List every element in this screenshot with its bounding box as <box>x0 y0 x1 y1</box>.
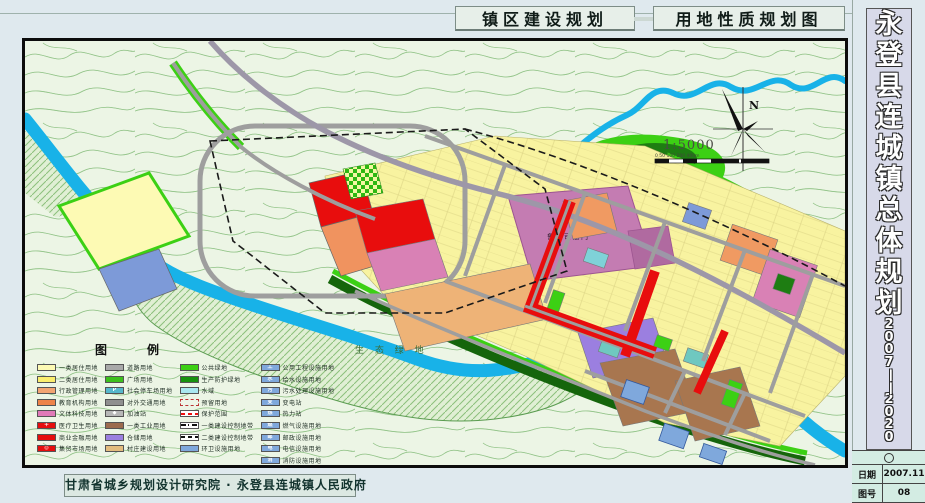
title-right: 用地性质规划图 <box>653 6 845 31</box>
date-label: 日期 <box>852 465 883 483</box>
sheet-title-year-char: 0 <box>884 432 893 445</box>
legend-item: P社会停车场用地 <box>105 387 173 394</box>
legend-column-1: 一类居住用地二类居住用地行政管理用地教育机构用地文体科技用地＋医疗卫生用地商业金… <box>37 364 98 468</box>
scale-bar-labels: 0 50 100 200 400m <box>655 153 699 159</box>
sheet-title-char: 总 <box>876 195 903 226</box>
title-connector <box>634 17 654 21</box>
legend-item: 燃燃气设施用地 <box>261 422 335 429</box>
legend-item: 教育机构用地 <box>37 399 98 406</box>
legend-item-label: 保护范围 <box>202 409 228 418</box>
legend-swatch <box>37 434 56 441</box>
legend-swatch-symbol: 热 <box>268 411 273 416</box>
legend-swatch <box>37 387 56 394</box>
legend-item: 工公用工程设施用地 <box>261 364 335 371</box>
legend-item-label: 集贸市场用地 <box>59 444 98 453</box>
eco-green-label: 生 态 绿 地 <box>355 344 428 356</box>
legend-swatch: P <box>105 387 124 394</box>
legend-item: 消消防设施用地 <box>261 457 335 464</box>
legend-item-label: 行政管理用地 <box>59 386 98 395</box>
legend-item-label: 公用工程设施用地 <box>283 363 335 372</box>
legend-item-label: 二类居住用地 <box>59 375 98 384</box>
sheet-title-char: 体 <box>876 226 903 257</box>
legend-item-label: 一类居住用地 <box>59 363 98 372</box>
legend-swatch <box>180 410 199 417</box>
sheet-title-year-char: 7 <box>884 357 893 370</box>
legend-item: ＋医疗卫生用地 <box>37 422 98 429</box>
legend-item: 对外交通用地 <box>105 399 173 406</box>
sheet-title-char: 永 <box>876 9 903 40</box>
legend-swatch-symbol: 消 <box>268 458 273 463</box>
legend-item-label: 商业金融用地 <box>59 433 98 442</box>
legend-swatch: ＋ <box>37 422 56 429</box>
footer-bar: 甘肃省城乡规划设计研究院 · 永登县连城镇人民政府 <box>0 468 852 500</box>
legend-item-label: 广场用地 <box>127 375 153 384</box>
sheet-title-char: 城 <box>876 133 903 164</box>
legend-item: 污污水处理设施用地 <box>261 387 335 394</box>
legend-item-label: 一类建设控制地带 <box>202 421 254 430</box>
legend-item: 二类居住用地 <box>37 376 98 383</box>
legend-item-label: 环卫设施用地 <box>202 444 241 453</box>
legend-item-label: 热力站 <box>283 409 303 418</box>
legend-item: 公共绿地 <box>180 364 254 371</box>
north-label: N <box>749 99 759 112</box>
legend-item-label: 燃气设施用地 <box>283 421 322 430</box>
legend-column-3: 公共绿地生产防护绿地水域预留用地保护范围一类建设控制地带二类建设控制地带环卫设施… <box>180 364 254 468</box>
legend-swatch: 工 <box>261 364 280 371</box>
legend-column-2: 道路用地广场用地P社会停车场用地对外交通用地◆加油站一类工业用地仓储用地村庄建设… <box>105 364 173 468</box>
legend-swatch <box>180 364 199 371</box>
stamp-row <box>852 451 925 465</box>
legend-swatch <box>105 364 124 371</box>
figure-number-label: 图号 <box>852 484 883 502</box>
legend-item: 热热力站 <box>261 410 335 417</box>
legend-item: ◆加油站 <box>105 410 173 417</box>
legend-swatch <box>37 364 56 371</box>
legend-swatch <box>105 399 124 406</box>
legend-item: 水域 <box>180 387 254 394</box>
date-value: 2007.11 <box>883 465 925 483</box>
legend-item: 商业金融用地 <box>37 434 98 441</box>
legend-item: ◎集贸市场用地 <box>37 445 98 452</box>
legend-item-label: 预留用地 <box>202 398 228 407</box>
sheet-title-char: 登 <box>876 40 903 71</box>
legend-item: 电电信设施用地 <box>261 445 335 452</box>
legend-swatch <box>105 376 124 383</box>
figure-number-value: 08 <box>883 484 925 502</box>
legend-swatch: 邮 <box>261 434 280 441</box>
legend-item-label: 二类建设控制地带 <box>202 433 254 442</box>
scale-ratio: 1:5000 <box>663 138 715 153</box>
legend-item: 广场用地 <box>105 376 173 383</box>
legend-item-label: 消防设施用地 <box>283 456 322 465</box>
legend-item: 仓储用地 <box>105 434 173 441</box>
legend-item-label: 加油站 <box>127 409 147 418</box>
sheet-title-year-char: — <box>883 369 896 382</box>
legend-item: 变变电站 <box>261 399 335 406</box>
legend-swatch: 电 <box>261 445 280 452</box>
stamp-circle-icon <box>884 453 894 463</box>
legend-item-label: 变电站 <box>283 398 303 407</box>
legend-item: 道路用地 <box>105 364 173 371</box>
legend-swatch-symbol: 燃 <box>268 423 273 428</box>
legend-swatch-symbol: ◎ <box>44 446 48 451</box>
legend-swatch-symbol: 变 <box>268 400 273 405</box>
legend-item-label: 道路用地 <box>127 363 153 372</box>
legend-swatch-symbol: 工 <box>268 365 273 370</box>
legend-item-label: 邮政设施用地 <box>283 433 322 442</box>
legend-swatch <box>180 387 199 394</box>
legend-item-label: 文体科技用地 <box>59 409 98 418</box>
legend-swatch: ◎ <box>37 445 56 452</box>
date-row: 日期 2007.11 <box>852 465 925 484</box>
legend-swatch-symbol: 邮 <box>268 435 273 440</box>
title-left: 镇区建设规划 <box>455 6 635 31</box>
legend-item-label: 电信设施用地 <box>283 444 322 453</box>
legend-columns: 一类居住用地二类居住用地行政管理用地教育机构用地文体科技用地＋医疗卫生用地商业金… <box>37 364 337 468</box>
legend-item: 生产防护绿地 <box>180 376 254 383</box>
legend-item-label: 仓储用地 <box>127 433 153 442</box>
legend-swatch-symbol: ◆ <box>113 411 117 416</box>
legend-swatch-symbol: ＋ <box>44 423 49 428</box>
legend-swatch <box>105 422 124 429</box>
map-canvas: 鲁土司衙门 <box>22 38 848 468</box>
legend-item-label: 给水设施用地 <box>283 375 322 384</box>
legend-item-label: 生产防护绿地 <box>202 375 241 384</box>
legend-item-label: 村庄建设用地 <box>127 444 166 453</box>
legend-item: 保护范围 <box>180 410 254 417</box>
sheet-title-char: 规 <box>876 257 903 288</box>
sheet-title-char: 划 <box>876 288 903 319</box>
sheet-title-char: 县 <box>876 71 903 102</box>
legend-swatch-symbol: P <box>113 388 117 393</box>
legend-swatch <box>180 422 199 429</box>
sheet-title-char: 镇 <box>876 164 903 195</box>
legend-item-label: 对外交通用地 <box>127 398 166 407</box>
legend-swatch: 热 <box>261 410 280 417</box>
legend-swatch-symbol: 污 <box>268 388 273 393</box>
legend-swatch: 消 <box>261 457 280 464</box>
legend-item: 一类建设控制地带 <box>180 422 254 429</box>
legend-item-label: 社会停车场用地 <box>127 386 173 395</box>
legend-item: 二类建设控制地带 <box>180 434 254 441</box>
legend-item: 邮邮政设施用地 <box>261 434 335 441</box>
legend: 图 例 一类居住用地二类居住用地行政管理用地教育机构用地文体科技用地＋医疗卫生用… <box>37 341 337 468</box>
legend-swatch <box>180 434 199 441</box>
legend-item: 村庄建设用地 <box>105 445 173 452</box>
info-table: 日期 2007.11 图号 08 <box>852 450 925 501</box>
legend-item-label: 公共绿地 <box>202 363 228 372</box>
legend-item-label: 一类工业用地 <box>127 421 166 430</box>
legend-swatch <box>180 399 199 406</box>
legend-item-label: 医疗卫生用地 <box>59 421 98 430</box>
legend-swatch-symbol: 电 <box>268 446 273 451</box>
legend-swatch: 变 <box>261 399 280 406</box>
legend-swatch <box>37 376 56 383</box>
legend-item: 一类居住用地 <box>37 364 98 371</box>
figure-number-row: 图号 08 <box>852 484 925 503</box>
legend-item: 预留用地 <box>180 399 254 406</box>
legend-swatch <box>105 434 124 441</box>
legend-item: 一类工业用地 <box>105 422 173 429</box>
legend-column-4: 工公用工程设施用地水给水设施用地污污水处理设施用地变变电站热热力站燃燃气设施用地… <box>261 364 335 468</box>
legend-swatch <box>37 410 56 417</box>
legend-title: 图 例 <box>95 341 337 358</box>
legend-swatch <box>105 445 124 452</box>
credit-box: 甘肃省城乡规划设计研究院 · 永登县连城镇人民政府 <box>64 474 356 497</box>
legend-swatch-symbol: 水 <box>268 377 273 382</box>
legend-item: 行政管理用地 <box>37 387 98 394</box>
legend-item: 水给水设施用地 <box>261 376 335 383</box>
legend-swatch: 燃 <box>261 422 280 429</box>
legend-item: 文体科技用地 <box>37 410 98 417</box>
legend-item-label: 水域 <box>202 386 215 395</box>
sheet-title-panel: 永登县连城镇总体规划2007——2020 <box>866 8 912 450</box>
legend-item: 环卫设施用地 <box>180 445 254 452</box>
legend-swatch: 水 <box>261 376 280 383</box>
sheet-title-char: 连 <box>876 102 903 133</box>
legend-swatch: ◆ <box>105 410 124 417</box>
planning-sheet: { "header": { "title_left": "镇区建设规划", "t… <box>0 0 925 500</box>
legend-swatch <box>180 445 199 452</box>
legend-swatch: 污 <box>261 387 280 394</box>
legend-swatch <box>37 399 56 406</box>
sheet-title-year-char: — <box>883 381 896 394</box>
sidebar: 永登县连城镇总体规划2007——2020 <box>852 0 925 500</box>
legend-swatch <box>180 376 199 383</box>
legend-item-label: 污水处理设施用地 <box>283 386 335 395</box>
legend-item-label: 教育机构用地 <box>59 398 98 407</box>
